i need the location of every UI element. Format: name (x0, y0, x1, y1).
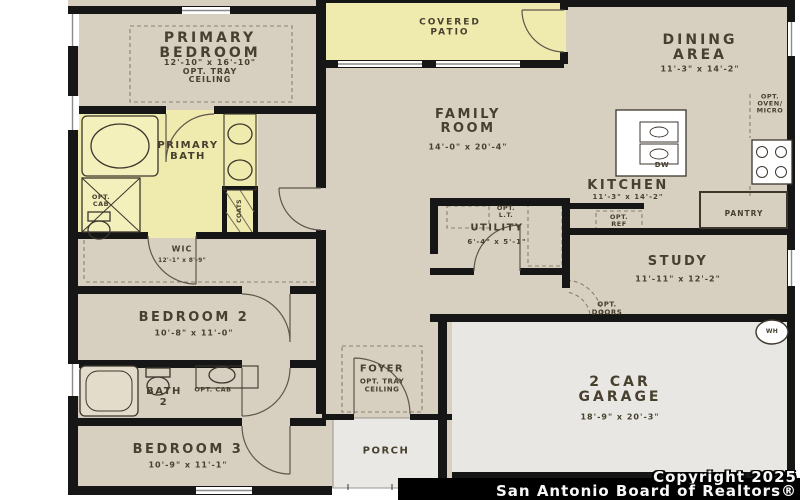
label-opt-doors: OPT. DOORS (592, 301, 623, 316)
label-coats: COATS (237, 199, 243, 222)
label-primary-bath: PRIMARY BATH (157, 141, 218, 163)
label-utility-dims: 6'-4" x 5'-1" (467, 239, 526, 247)
label-foyer-note: OPT. TRAY CEILING (360, 378, 404, 393)
label-dw: DW (655, 162, 670, 170)
label-bedroom-3: BEDROOM 3 (133, 443, 244, 457)
label-study: STUDY (648, 255, 709, 269)
label-porch: PORCH (363, 447, 410, 458)
label-covered-patio: COVERED PATIO (419, 18, 481, 37)
copyright-line-2: San Antonio Board of Realtors® (496, 482, 797, 500)
label-study-dims: 11'-11" x 12'-2" (635, 276, 721, 285)
label-opt-cab-bath2: OPT. CAB (194, 386, 231, 393)
label-utility: UTILITY (470, 224, 523, 235)
floor-plan: PRIMARY BEDROOM 12'-10" x 16'-10" OPT. T… (0, 0, 800, 500)
label-garage-dims: 18'-9" x 20'-3" (580, 414, 659, 423)
tub-icon (82, 116, 158, 176)
tub-icon (80, 366, 138, 416)
label-wic: WIC (172, 246, 193, 255)
label-primary-bedroom-dims: 12'-10" x 16'-10" OPT. TRAY CEILING (164, 59, 256, 85)
label-primary-bedroom: PRIMARY BEDROOM (159, 31, 260, 61)
label-opt-cab-primary: OPT. CAB (92, 194, 110, 208)
label-foyer: FOYER (360, 365, 404, 376)
label-garage: 2 CAR GARAGE (579, 375, 662, 405)
label-pantry: PANTRY (725, 210, 764, 218)
label-kitchen-dims: 11'-3" x 14'-2" (592, 194, 663, 202)
label-bedroom-3-dims: 10'-9" x 11'-1" (148, 462, 227, 471)
label-dining-area: DINING AREA (663, 33, 738, 63)
label-dining-area-dims: 11'-3" x 14'-2" (660, 66, 739, 75)
label-kitchen: KITCHEN (587, 179, 668, 193)
label-family-room: FAMILY ROOM (435, 108, 501, 136)
label-family-room-dims: 14'-0" x 20'-4" (428, 144, 507, 153)
cooktop-icon (752, 140, 792, 184)
floor-plan-drawing (0, 0, 800, 500)
label-opt-ref: OPT. REF (610, 214, 628, 228)
kitchen-island (616, 110, 686, 176)
label-bath-2: BATH 2 (146, 387, 182, 409)
label-opt-lt: OPT. L.T. (497, 205, 515, 219)
label-wh: WH (766, 329, 778, 335)
label-bedroom-2: BEDROOM 2 (139, 311, 250, 325)
label-opt-oven-micro: OPT. OVEN/ MICRO (757, 93, 784, 114)
label-bedroom-2-dims: 10'-8" x 11'-0" (154, 330, 233, 339)
label-wic-dims: 12'-1" x 8'-9" (158, 258, 206, 264)
